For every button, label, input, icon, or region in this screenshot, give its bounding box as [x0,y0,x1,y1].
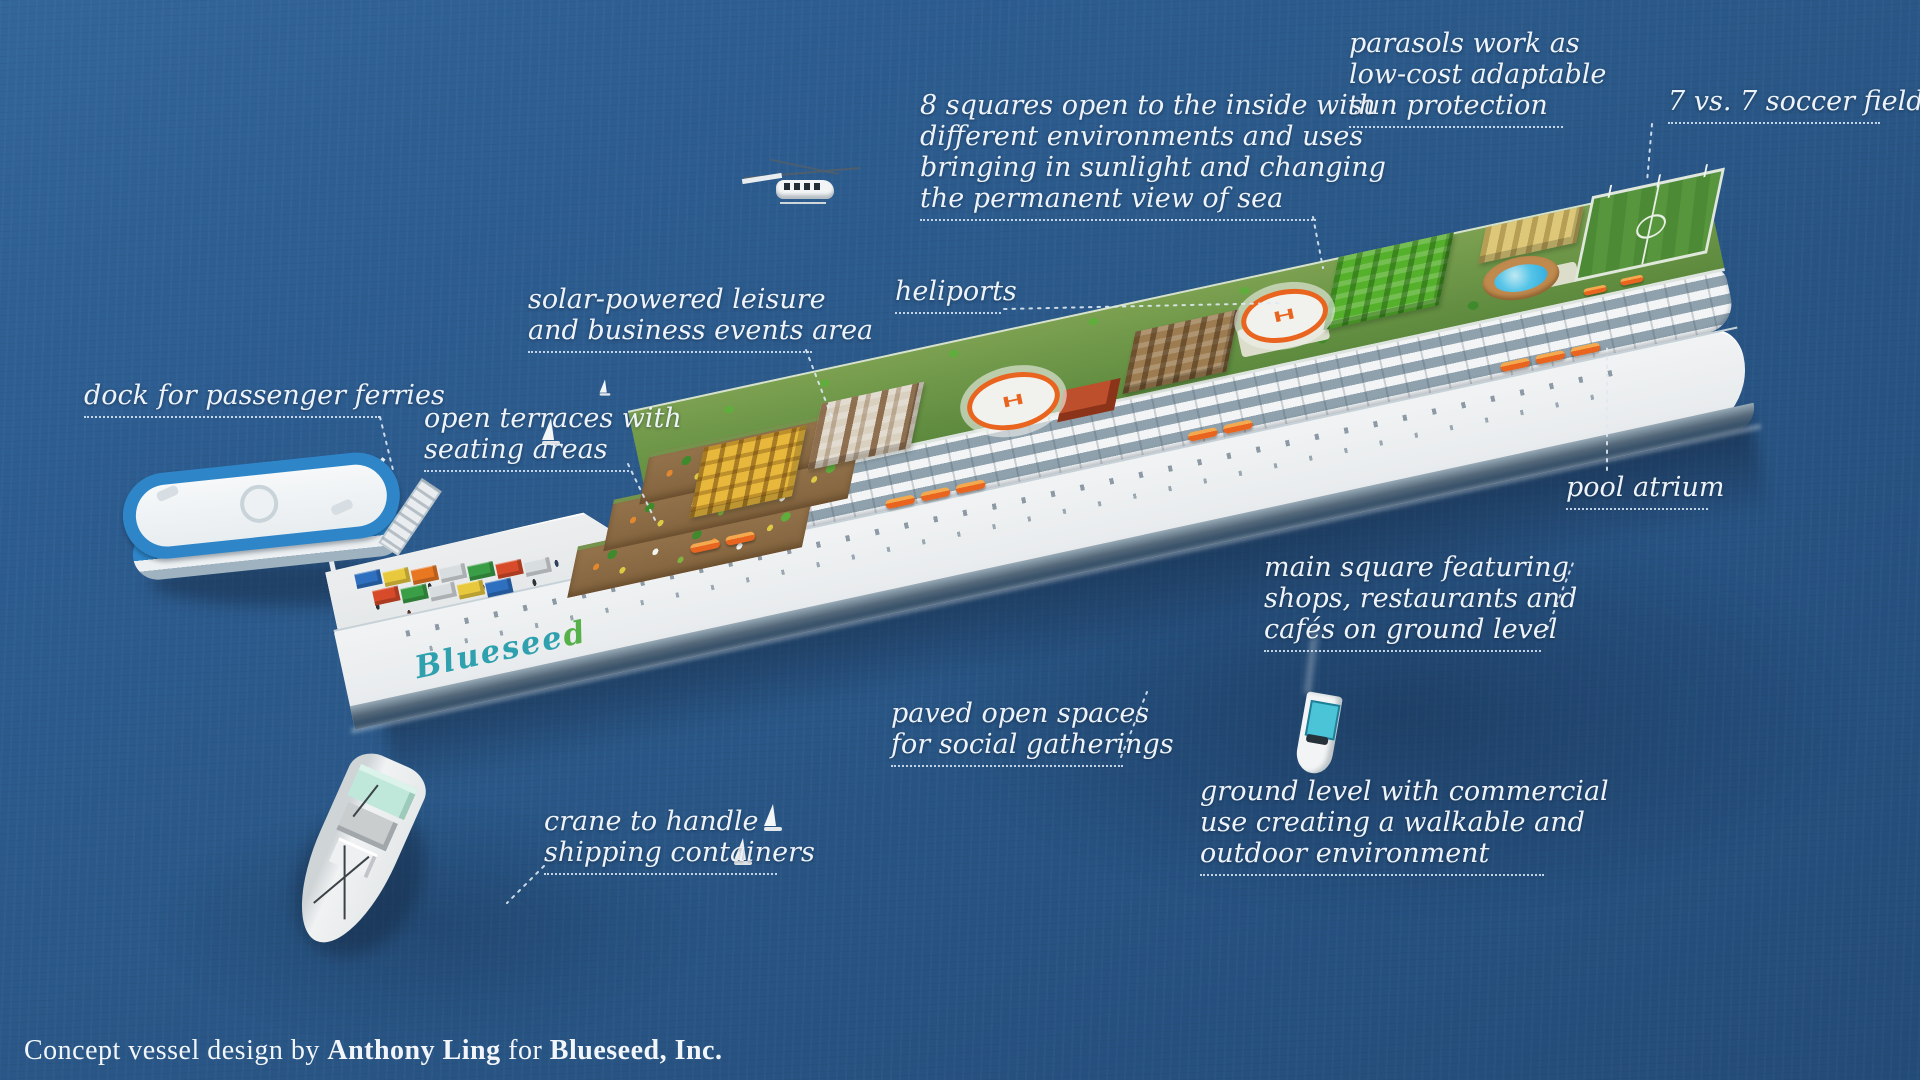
pitch-center-circle [1634,212,1668,242]
label-eight-squares: 8 squares open to the inside with differ… [920,90,1316,221]
label-line: open terraces with [424,403,629,434]
helicopter-windows [784,183,824,190]
label-main-square: main square featuring shops, restaurants… [1264,552,1541,652]
label-line: 7 vs. 7 soccer field [1668,86,1880,117]
label-soccer-field: 7 vs. 7 soccer field [1668,86,1880,124]
light-post [1703,164,1708,177]
label-line: 8 squares open to the inside with [920,90,1316,121]
leader-line [1647,124,1652,182]
label-line: and business events area [528,315,812,346]
label-paved-spaces: paved open spaces for social gatherings [891,698,1123,767]
credit-author: Anthony Ling [327,1035,500,1066]
label-line: sun protection [1349,90,1563,121]
label-line: solar-powered leisure [528,284,812,315]
label-line: heliports [895,276,1001,307]
helicopter [740,156,852,212]
label-line: low-cost adaptable [1349,59,1563,90]
label-line: crane to handle [544,806,777,837]
label-pool-atrium: pool atrium [1566,472,1708,510]
label-line: for social gatherings [891,729,1123,760]
credit-line: Concept vessel design by Anthony Ling fo… [24,1034,722,1068]
pool-water [1492,260,1550,297]
leader-line [507,866,544,903]
label-ground-level: ground level with commercial use creatin… [1200,776,1544,876]
label-line: shops, restaurants and [1264,583,1541,614]
label-line: paved open spaces [891,698,1123,729]
label-line: the permanent view of sea [920,183,1316,214]
label-crane: crane to handle shipping containers [544,806,777,875]
credit-text: for [501,1035,550,1066]
label-parasols: parasols work as low-cost adaptable sun … [1349,28,1563,128]
motorboat [1285,686,1356,784]
label-solar-events-area: solar-powered leisure and business event… [528,284,812,353]
label-line: use creating a walkable and [1200,807,1544,838]
label-line: main square featuring [1264,552,1541,583]
label-line: outdoor environment [1200,838,1544,869]
sail-canvas [600,379,607,392]
label-line: parasols work as [1349,28,1563,59]
passenger-ferry [111,431,425,612]
sailboat [600,379,611,395]
label-ferry-dock: dock for passenger ferries [84,380,380,418]
label-line: seating areas [424,434,629,465]
mast [344,845,346,919]
label-line: different environments and uses [920,121,1316,152]
label-line: shipping containers [544,837,777,868]
ocean-scene: Blueseed H H [0,0,1920,1080]
credit-text: Concept vessel design by [24,1035,327,1066]
label-line: bringing in sunlight and changing [920,152,1316,183]
label-line: ground level with commercial [1200,776,1544,807]
label-line: cafés on ground level [1264,614,1541,645]
sail-hull [600,393,611,395]
light-post [1608,185,1613,198]
credit-company: Blueseed, Inc. [550,1035,723,1066]
label-open-terraces: open terraces with seating areas [424,403,629,472]
label-line: pool atrium [1566,472,1708,503]
label-heliports: heliports [895,276,1001,314]
label-line: dock for passenger ferries [84,380,380,411]
helicopter-skid [780,202,826,204]
